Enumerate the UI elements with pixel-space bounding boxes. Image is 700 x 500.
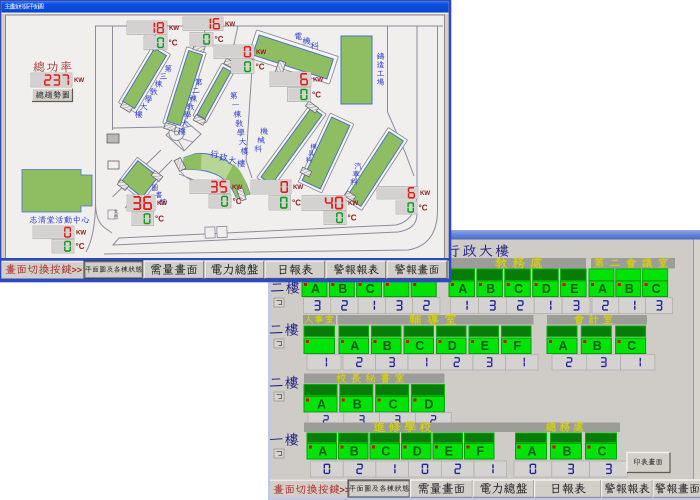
- svg-text:B: B: [338, 282, 347, 296]
- svg-text:°C: °C: [215, 35, 224, 44]
- svg-text:KW: KW: [76, 229, 86, 236]
- svg-text:B: B: [486, 282, 495, 296]
- svg-text:A: A: [318, 445, 327, 459]
- svg-text:KW: KW: [74, 77, 84, 84]
- svg-text:>>: >>: [72, 265, 83, 275]
- svg-text:C: C: [652, 282, 661, 296]
- svg-text:°C: °C: [233, 197, 242, 206]
- svg-text:°C: °C: [169, 39, 178, 48]
- svg-text:D: D: [413, 445, 422, 459]
- svg-text:C: C: [597, 445, 606, 459]
- svg-text:A: A: [350, 339, 359, 353]
- svg-text:A: A: [317, 398, 326, 412]
- svg-text:B: B: [625, 282, 634, 296]
- svg-text:KW: KW: [169, 25, 179, 32]
- svg-text:KW: KW: [157, 200, 167, 207]
- svg-text:A: A: [598, 282, 607, 296]
- svg-text:°C: °C: [348, 214, 357, 223]
- svg-text:D: D: [424, 398, 433, 412]
- svg-text:E: E: [481, 339, 489, 353]
- svg-text:E: E: [570, 282, 578, 296]
- svg-text:C: C: [381, 445, 390, 459]
- svg-text:A: A: [527, 445, 536, 459]
- svg-text:D: D: [448, 339, 457, 353]
- svg-text:°C: °C: [155, 215, 164, 224]
- svg-text:KW: KW: [420, 190, 430, 197]
- svg-text:B: B: [353, 398, 362, 412]
- svg-text:A: A: [458, 282, 467, 296]
- svg-text:KW: KW: [232, 184, 242, 191]
- svg-text:F: F: [513, 339, 521, 353]
- svg-text:B: B: [562, 445, 571, 459]
- svg-text:A: A: [558, 339, 567, 353]
- svg-text:°C: °C: [419, 203, 428, 212]
- svg-text:C: C: [389, 398, 398, 412]
- svg-text:B: B: [593, 339, 602, 353]
- svg-text:KW: KW: [225, 21, 235, 28]
- svg-text:F: F: [476, 445, 484, 459]
- svg-text:°C: °C: [292, 199, 301, 208]
- svg-text:C: C: [415, 339, 424, 353]
- svg-text:KW: KW: [293, 184, 303, 191]
- svg-text:C: C: [514, 282, 523, 296]
- svg-text:KW: KW: [348, 200, 358, 207]
- svg-text:E: E: [445, 445, 453, 459]
- svg-text:°C: °C: [312, 90, 321, 99]
- svg-text:C: C: [627, 339, 636, 353]
- svg-text:A: A: [311, 282, 320, 296]
- svg-text:KW: KW: [313, 76, 323, 83]
- svg-text:°C: °C: [256, 63, 265, 72]
- svg-text:°C: °C: [76, 242, 85, 251]
- svg-text:C: C: [366, 282, 375, 296]
- svg-text:B: B: [350, 445, 359, 459]
- svg-text:D: D: [542, 282, 551, 296]
- svg-text:KW: KW: [256, 49, 266, 56]
- svg-text:B: B: [383, 339, 392, 353]
